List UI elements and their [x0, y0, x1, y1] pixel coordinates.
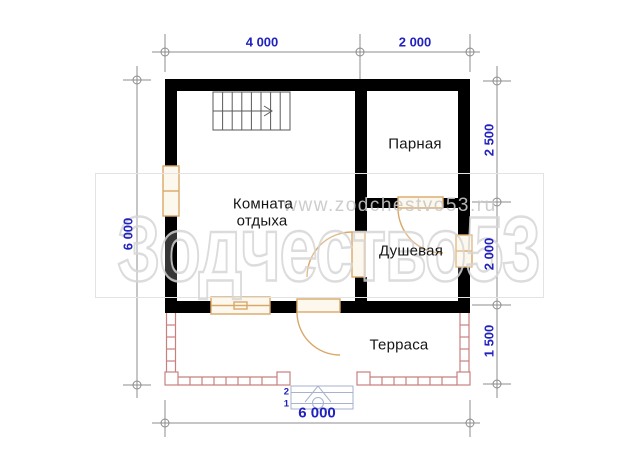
dim-top-left: 4 000 — [246, 35, 279, 50]
entry-step-1-label: 1 — [284, 399, 289, 410]
room-label-steam: Парная — [388, 136, 441, 153]
stairs-direction-arrow-icon — [213, 106, 272, 116]
dim-right-middle: 2 000 — [482, 238, 497, 271]
dim-left: 6 000 — [121, 218, 136, 251]
room-label-rest-line2: отдыха — [237, 213, 288, 230]
stairs — [213, 92, 290, 130]
up-arrow-icon — [305, 386, 331, 402]
dim-right-top: 2 500 — [482, 124, 497, 157]
room-label-rest-line1: Комната — [233, 196, 293, 213]
dim-right-bottom: 1 500 — [482, 325, 497, 358]
terrace-posts — [165, 372, 470, 385]
door-terrace — [297, 299, 340, 355]
floor-plan-canvas: www.zodchestvo53.ru Зодчество53 Комната … — [0, 0, 640, 470]
room-label-shower: Душевая — [379, 243, 443, 260]
dim-top-right: 2 000 — [399, 35, 432, 50]
entry-step-2-label: 2 — [284, 387, 289, 398]
room-label-terrace: Терраса — [370, 337, 429, 354]
dim-bottom: 6 000 — [298, 405, 336, 422]
watermark-logo-text: Зодчество53 — [117, 198, 539, 303]
